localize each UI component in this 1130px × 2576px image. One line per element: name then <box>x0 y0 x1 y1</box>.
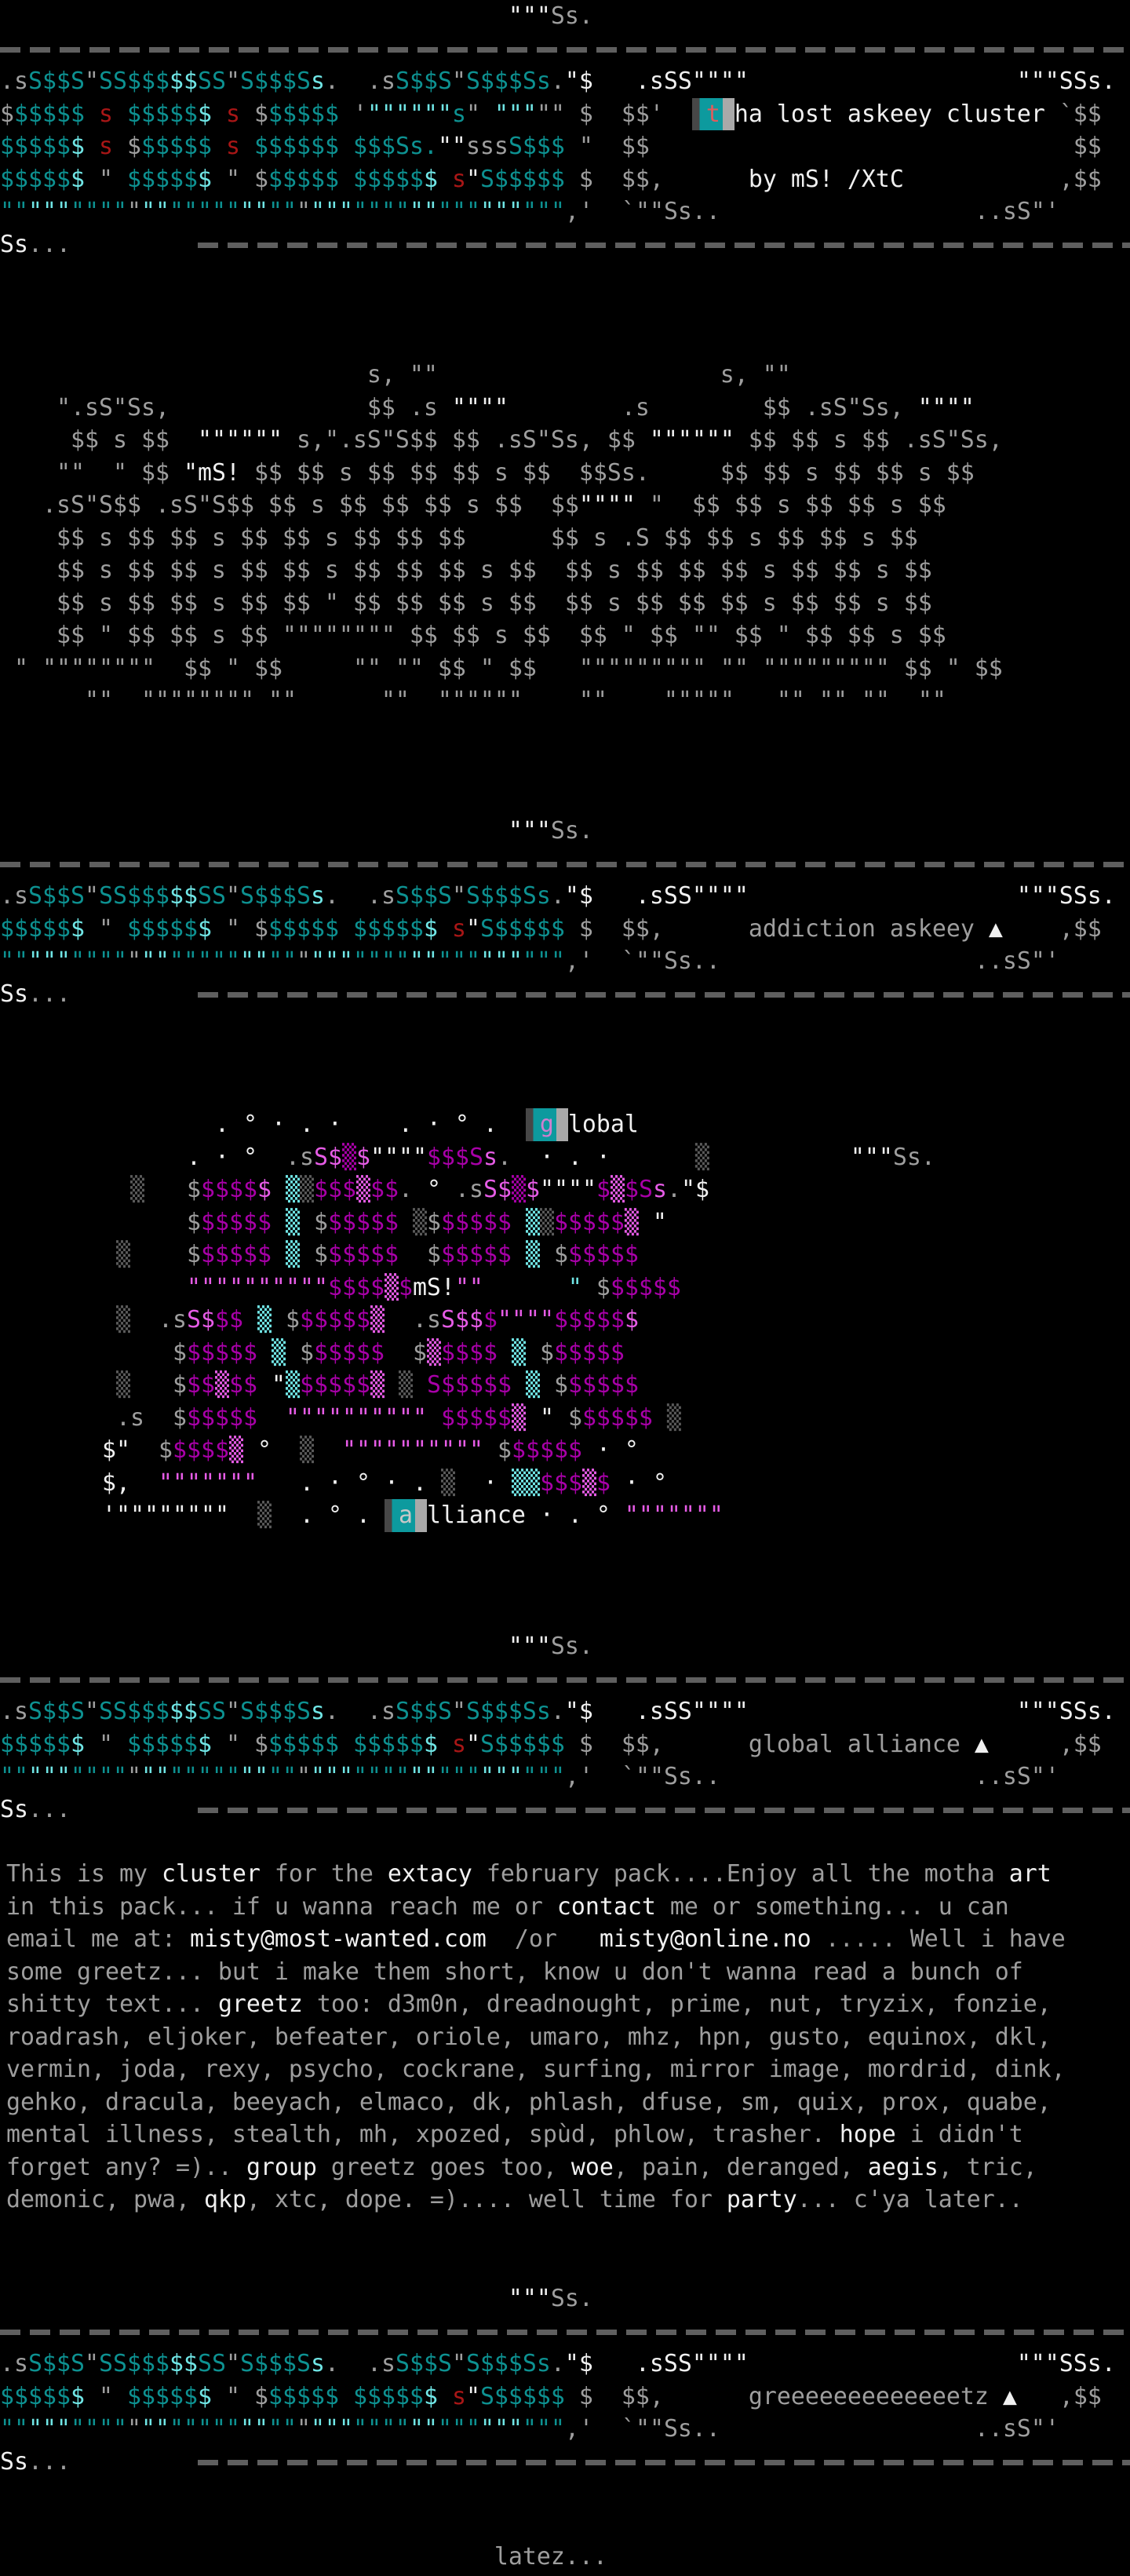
art-text: for the <box>261 1860 388 1888</box>
art-text: S$ <box>483 1176 512 1203</box>
art-text: ▒ <box>526 1209 540 1236</box>
art-text: "" <box>537 100 565 128</box>
dashed-separator <box>0 2330 1130 2335</box>
spacer <box>664 491 692 519</box>
art-text: S$$$S <box>466 68 537 95</box>
art-text: too: d3m0n, dreadnought, prime, nut, try… <box>303 1990 1052 2018</box>
art-text: "" <box>240 2415 268 2443</box>
art-text: """ <box>438 2415 480 2443</box>
spacer <box>385 1306 413 1334</box>
art-text: $ <box>399 1274 413 1301</box>
spacer <box>1116 2350 1130 2377</box>
art-line <box>0 2315 1130 2348</box>
spacer <box>0 2543 494 2571</box>
art-text: SS$$$ <box>99 68 169 95</box>
art-line: .s $$$$$$ """""""""" $$$$$▒ " $$$$$$ ▒ <box>102 1402 935 1435</box>
art-text: ,$$ <box>1059 166 1102 193</box>
art-text: $$$$$ <box>353 2383 424 2410</box>
art-text: " <box>127 947 141 975</box>
spacer <box>0 556 56 584</box>
art-text: . <box>325 2350 367 2377</box>
art-text: S$$$S <box>240 882 311 910</box>
art-text: $$ s $$ $$ $$ s $$ $$ s $$ <box>565 556 932 584</box>
art-text: ▒ <box>116 1241 130 1268</box>
spacer <box>272 1209 286 1236</box>
art-text: .sS"S$$ .sS"S$$ $$ s $$ <box>42 491 367 519</box>
art-text: "$ <box>681 1176 709 1203</box>
spacer <box>720 1763 975 1790</box>
art-line: $$ s $$ """""" s,".sS"S$$ $$ .sS"Ss, $$ … <box>0 424 1003 457</box>
spacer <box>593 947 621 975</box>
spacer <box>257 1404 286 1432</box>
art-text: ▒ <box>667 1404 681 1432</box>
art-text: ▒ <box>300 1176 314 1203</box>
art-text: $$$$$ <box>0 1731 71 1758</box>
art-text: """ <box>494 100 537 128</box>
art-text: $ <box>127 133 141 160</box>
spacer <box>0 2 508 30</box>
art-text: $ <box>565 100 621 128</box>
art-text: """"""" <box>625 1501 724 1529</box>
art-text: · ° <box>625 1469 667 1497</box>
spacer <box>537 556 565 584</box>
spacer <box>593 882 636 910</box>
art-text: i didn't <box>896 2121 1023 2148</box>
bar-greetz: """Ss..sS$$S"SS$$$$$SS"S$$$Ss. .sS$$S"S$… <box>0 2282 1130 2478</box>
art-text: `""Ss.. <box>621 1763 720 1790</box>
art-text: $$ <box>215 1306 243 1334</box>
art-text: $$ <box>169 1698 198 1725</box>
art-text: .s <box>621 394 650 421</box>
art-text: .s <box>367 1698 395 1725</box>
art-text: S$$$S <box>240 1698 311 1725</box>
spacer <box>282 655 353 682</box>
art-text: """""" <box>367 100 452 128</box>
art-text: $$$$$ <box>328 1209 399 1236</box>
art-text <box>339 133 353 160</box>
spacer <box>523 687 579 714</box>
art-text: $ <box>413 1339 427 1366</box>
art-text: Ss <box>0 231 28 258</box>
art-text: '"""""""" <box>102 1501 229 1529</box>
spacer <box>720 947 975 975</box>
spacer <box>551 622 579 649</box>
art-text: contact <box>557 1893 656 1921</box>
art-text: s <box>311 882 325 910</box>
art-text: SS$$$ <box>99 882 169 910</box>
art-text: " <box>466 1731 480 1758</box>
spacer <box>102 1274 187 1301</box>
spacer <box>130 1241 187 1268</box>
art-text <box>438 915 452 943</box>
art-text: $S <box>625 1176 653 1203</box>
art-text: /or <box>487 1925 600 1953</box>
art-text: """ <box>508 1633 551 1660</box>
art-text: $$$$$ <box>127 166 198 193</box>
art-text: SS <box>198 68 226 95</box>
spacer <box>1102 100 1130 128</box>
art-text: $$ <box>187 1371 215 1399</box>
spacer <box>1102 2383 1130 2410</box>
art-line: """Ss. <box>0 0 1130 33</box>
art-text: """ <box>508 817 551 845</box>
art-text: " <box>653 1209 667 1236</box>
art-text: .sSS"""" <box>636 2350 749 2377</box>
art-text: "" <box>410 1763 438 1790</box>
art-text: lliance <box>427 1501 526 1529</box>
art-text: $$$$$ <box>441 1241 512 1268</box>
spacer <box>593 1698 636 1725</box>
spacer <box>0 817 508 845</box>
art-line: """Ss. <box>0 2282 1130 2315</box>
art-text: $ <box>254 2383 268 2410</box>
art-text: $$ <box>169 68 198 95</box>
spacer <box>749 882 1017 910</box>
art-text: " <box>226 882 240 910</box>
art-text: " <box>85 1698 99 1725</box>
art-text: ▒ <box>116 1306 130 1334</box>
art-text: S$$$$$ <box>480 2383 565 2410</box>
art-text: s <box>537 1698 551 1725</box>
art-text: Ss <box>0 2448 28 2476</box>
art-text: .s <box>0 1698 28 1725</box>
spacer <box>512 1209 526 1236</box>
art-text: forget any? =).. <box>6 2154 246 2181</box>
spacer <box>102 1111 215 1138</box>
art-text: $$ " $$ <box>184 655 282 682</box>
art-text: " <box>297 1763 311 1790</box>
spacer <box>272 1176 286 1203</box>
art-text: cluster <box>162 1860 261 1888</box>
art-text: $ <box>198 166 212 193</box>
art-text: " <box>212 166 254 193</box>
art-text: $ <box>356 1144 370 1171</box>
art-text: s <box>452 915 466 943</box>
art-line: . ° · . · . · ° . global <box>102 1108 935 1141</box>
art-text: ".sS"Ss, <box>56 394 169 421</box>
art-line: s, "" s, "" <box>0 359 1003 392</box>
spacer <box>1116 68 1130 95</box>
a-block-icon: a <box>385 1499 427 1532</box>
art-text: S$$S <box>395 68 452 95</box>
art-text <box>339 915 353 943</box>
art-text: """ <box>523 198 565 225</box>
art-text: . ° . <box>300 1501 370 1529</box>
spacer <box>593 198 621 225</box>
art-text: $$$ <box>314 1176 356 1203</box>
art-text: ... <box>28 980 71 1008</box>
art-line: Ss... <box>0 978 1130 1011</box>
art-text: ▒ <box>611 1176 625 1203</box>
spacer <box>71 231 198 258</box>
art-text: . <box>498 1144 512 1171</box>
art-text: $$, <box>621 166 664 193</box>
art-text: "" <box>268 2415 297 2443</box>
art-text: . <box>551 68 565 95</box>
art-line: ▒ $$$$$$ ▒▒$$$▒$$. ° .sS$▒$""""$▒$Ss."$ <box>102 1173 935 1206</box>
art-text: Ss. <box>893 1144 935 1171</box>
art-text: .s <box>0 882 28 910</box>
spacer <box>1102 915 1130 943</box>
art-text: $ <box>198 100 212 128</box>
art-text: S$$$$$ <box>480 1731 565 1758</box>
art-text: roadrash, eljoker, befeater, oriole, uma… <box>6 2023 1052 2051</box>
art-text: $ <box>424 2383 438 2410</box>
art-text: ▒ <box>215 1371 229 1399</box>
art-text: """" <box>353 2415 410 2443</box>
art-text: s, "" <box>720 361 791 389</box>
art-text: S$$$S <box>240 2350 311 2377</box>
art-text: """SSs. <box>1017 882 1116 910</box>
art-text: $ <box>71 915 85 943</box>
art-line: latez... <box>0 2541 607 2574</box>
art-text: $$ s $$ $$ s $$ $$ s $$ $$ $$ s $$ <box>56 556 537 584</box>
spacer <box>526 1339 540 1366</box>
spacer <box>593 68 636 95</box>
art-text: $$$$$ <box>0 915 71 943</box>
art-text: .s <box>413 1306 441 1334</box>
art-text: $$$$$ <box>268 1731 339 1758</box>
art-text: """""""""" <box>286 1404 427 1432</box>
art-text: $ <box>0 100 14 128</box>
art-text: Ss. <box>551 2285 593 2312</box>
art-text: $$$$$ <box>187 1339 257 1366</box>
art-text: ..sS"' <box>975 2415 1059 2443</box>
art-text: s <box>226 100 240 128</box>
art-text: $$$$$ <box>300 1306 370 1334</box>
art-line: Ss... <box>0 1793 1130 1826</box>
art-text: $$ $$ s $$ $$ s $$ <box>720 459 975 487</box>
spacer <box>650 459 720 487</box>
spacer <box>102 1144 187 1171</box>
art-text: $$$$$ <box>582 1404 653 1432</box>
spacer <box>611 1469 625 1497</box>
art-text: $$$$$ <box>268 166 339 193</box>
art-text: ▒ <box>286 1241 300 1268</box>
art-text: """" <box>498 1306 554 1334</box>
dashed-separator <box>198 992 1130 998</box>
art-text: $ <box>71 166 85 193</box>
dashed-separator <box>198 243 1130 248</box>
art-text: $ <box>596 1176 611 1203</box>
art-line: This is my cluster for the extacy februa… <box>6 1858 1066 1891</box>
spacer <box>113 687 141 714</box>
art-text: " <box>127 198 141 225</box>
art-text <box>339 1731 353 1758</box>
art-line: $$$$$$ " $$$$$$ " $$$$$$ $$$$$$ s"S$$$$$… <box>0 913 1130 946</box>
spacer <box>508 394 621 421</box>
art-text: · <box>483 1469 498 1497</box>
art-text: `""Ss.. <box>621 198 720 225</box>
art-text: $$$$$ <box>328 1241 399 1268</box>
art-text: "" <box>240 1763 268 1790</box>
spacer <box>650 133 1073 160</box>
art-text: Ss. <box>551 1633 593 1660</box>
art-text: $ <box>498 1436 512 1464</box>
art-text: mS! <box>413 1274 455 1301</box>
art-text <box>438 2383 452 2410</box>
art-text: "" <box>141 2415 169 2443</box>
art-text: """"" <box>169 2415 240 2443</box>
art-text: $$ .sS"Ss, <box>763 394 904 421</box>
art-text: S$ <box>187 1306 215 1334</box>
spacer <box>664 100 692 128</box>
art-text: $$$$$ <box>441 1209 512 1236</box>
art-line: forget any? =).. group greetz goes too, … <box>6 2151 1066 2184</box>
art-text: "$ <box>565 68 593 95</box>
art-text: "" <box>240 947 268 975</box>
art-text: ▒▒ <box>512 1469 540 1497</box>
spacer <box>130 1306 159 1334</box>
spacer <box>169 394 367 421</box>
spacer <box>169 426 198 454</box>
art-text: S$$$S <box>466 2350 537 2377</box>
art-text: " """""""" <box>14 655 155 682</box>
art-line: ▒ $$$▒$$ "▒$$$$$▒ ▒ S$$$$$ ▒ $$$$$$ <box>102 1369 935 1402</box>
art-text: S$$$$$ <box>480 166 565 193</box>
art-text: "$ <box>565 1698 593 1725</box>
art-text: Ss <box>0 980 28 1008</box>
spacer <box>300 1209 314 1236</box>
spacer <box>498 1469 512 1497</box>
art-text: misty@online.no <box>600 1925 811 1953</box>
art-text: ▒ <box>257 1501 272 1529</box>
art-text: " <box>212 915 254 943</box>
spacer <box>582 1274 596 1301</box>
art-text: " <box>85 2383 127 2410</box>
art-text: .s <box>0 68 28 95</box>
art-text: S$$S <box>395 882 452 910</box>
art-text: " <box>85 882 99 910</box>
spacer <box>102 1371 116 1399</box>
art-text: $$$$$ <box>127 1731 198 1758</box>
spacer <box>904 394 918 421</box>
spacer <box>1059 198 1130 225</box>
art-text: " <box>568 1274 582 1301</box>
art-text: " <box>272 1371 286 1399</box>
art-text: $ <box>198 2383 212 2410</box>
art-text: ,' <box>565 947 593 975</box>
art-text <box>212 100 226 128</box>
art-text: ..... Well i have <box>811 1925 1066 1953</box>
art-text: ▒ <box>540 1209 554 1236</box>
spacer <box>749 2350 1017 2377</box>
art-text: $$ $$ s $$ $$ $$ s $$ <box>254 459 551 487</box>
art-text: ,' <box>565 2415 593 2443</box>
art-text: "" <box>141 947 169 975</box>
spacer <box>0 655 14 682</box>
spacer <box>257 1371 272 1399</box>
spacer <box>102 1306 116 1334</box>
art-text: latez... <box>494 2543 607 2571</box>
art-text: S$$$ <box>508 133 565 160</box>
triangle-up-icon: ▲ <box>960 1731 989 1758</box>
art-text: , xtc, dope. =).... well time for <box>246 2186 727 2213</box>
art-text: $$ $$ s $$ $$ s $$ <box>692 491 946 519</box>
art-text: . ° · . · <box>215 1111 342 1138</box>
art-text: in this pack... if u wanna reach me or <box>6 1893 557 1921</box>
art-line: ▒ $$$$$$ ▒ $$$$$$ $$$$$$ ▒ $$$$$$ <box>102 1239 935 1272</box>
art-text: . <box>551 1698 565 1725</box>
spacer <box>0 459 56 487</box>
global-alliance-word-art: . ° · . · . · ° . global . · ° .sS$▒$"""… <box>102 1108 935 1532</box>
art-text: " <box>650 491 664 519</box>
art-text: $ <box>565 166 621 193</box>
art-text: ▒ <box>300 1436 314 1464</box>
art-text: "" <box>85 687 113 714</box>
art-text: " <box>226 2350 240 2377</box>
art-text: $ <box>483 1306 498 1334</box>
art-text: $ <box>424 915 438 943</box>
art-text: S$$S <box>395 1698 452 1725</box>
art-text: "" "" $$ " $$ <box>353 655 537 682</box>
spacer <box>272 1501 300 1529</box>
art-text: s,".sS"S$$ $$ .sS"Ss, <box>297 426 593 454</box>
spacer <box>297 687 381 714</box>
spacer <box>1102 133 1130 160</box>
art-text <box>85 100 99 128</box>
art-text: ▒ <box>526 1241 540 1268</box>
art-text: .s <box>367 2350 395 2377</box>
art-text <box>85 133 99 160</box>
addiction-word-art: s, "" s, "" ".sS"Ss, $$ .s """" .s $$ .s… <box>0 359 1003 717</box>
art-text: " <box>297 947 311 975</box>
spacer <box>734 687 777 714</box>
art-text: $ <box>596 1274 611 1301</box>
art-text: ▒ <box>441 1469 455 1497</box>
art-text: Ss <box>0 1796 28 1823</box>
art-text: $ <box>187 1209 201 1236</box>
spacer <box>0 622 56 649</box>
spacer <box>636 491 650 519</box>
art-text: """ <box>28 198 71 225</box>
art-text: $$$$$ <box>353 1731 424 1758</box>
art-line: " """""""" $$ " $$ "" "" $$ " $$ """""""… <box>0 652 1003 685</box>
art-text: """"" <box>169 947 240 975</box>
art-text: , pain, deranged, <box>614 2154 868 2181</box>
art-text: """ <box>523 1763 565 1790</box>
art-line: """Ss. <box>0 1630 1130 1663</box>
spacer <box>498 1339 512 1366</box>
spacer <box>0 361 367 389</box>
art-text: $$$$$ <box>201 1241 272 1268</box>
spacer <box>257 1339 272 1366</box>
art-text: $$ <box>1073 133 1102 160</box>
spacer <box>130 1371 173 1399</box>
spacer <box>300 1241 314 1268</box>
art-text: """" <box>353 947 410 975</box>
art-line <box>0 1663 1130 1696</box>
art-text: ... <box>28 2448 71 2476</box>
art-text: $$ <box>229 1371 257 1399</box>
art-text: . <box>325 68 367 95</box>
spacer <box>144 1404 173 1432</box>
art-text: $ <box>187 1176 201 1203</box>
art-text: $$$$$ <box>141 133 212 160</box>
spacer <box>272 1241 286 1268</box>
art-text: $ <box>427 1209 441 1236</box>
spacer <box>709 1144 851 1171</box>
spacer <box>483 1436 498 1464</box>
art-text: $ <box>198 1731 212 1758</box>
art-text: $$$$$ <box>127 915 198 943</box>
spacer <box>240 459 254 487</box>
art-text: $ <box>540 1339 554 1366</box>
art-text: ▒ <box>370 1306 385 1334</box>
art-text: """ <box>28 1763 71 1790</box>
art-text: "$ <box>565 882 593 910</box>
art-text: `""Ss.. <box>621 2415 720 2443</box>
